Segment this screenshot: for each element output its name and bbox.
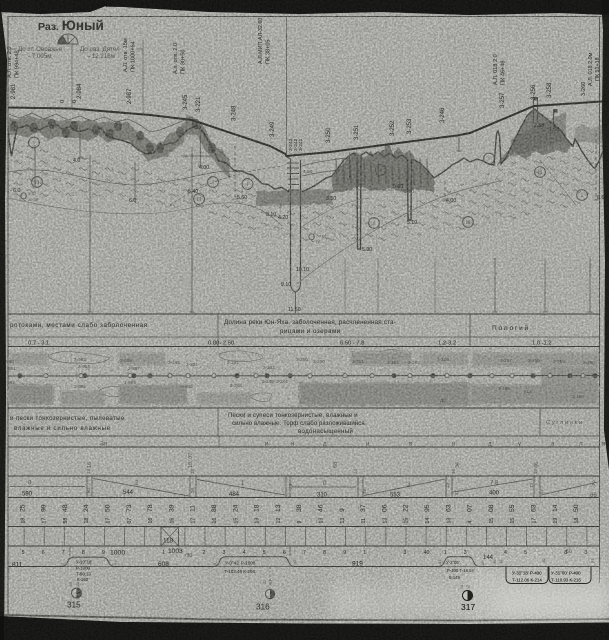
svg-text:38: 38: [296, 504, 303, 512]
svg-text:3-249: 3-249: [270, 121, 276, 137]
svg-text:484: 484: [229, 492, 240, 498]
svg-text:3.10: 3.10: [266, 212, 276, 218]
svg-text:310: 310: [317, 493, 328, 499]
svg-text:13: 13: [255, 518, 261, 524]
svg-text:0: 0: [72, 100, 78, 103]
svg-text:1.2-3.2: 1.2-3.2: [438, 341, 456, 347]
svg-text:13: 13: [275, 504, 282, 512]
svg-text:16: 16: [169, 518, 175, 524]
svg-text:0: 0: [60, 100, 66, 103]
svg-text:2: 2: [203, 550, 206, 556]
svg-text:15: 15: [233, 518, 239, 524]
svg-text:10.10: 10.10: [296, 267, 309, 273]
svg-text:9: 9: [297, 521, 303, 524]
svg-text:9: 9: [343, 550, 346, 556]
svg-text:7: 7: [62, 550, 65, 556]
svg-text:водонасыщенный: водонасыщенный: [298, 428, 353, 435]
svg-text:3: 3: [404, 550, 407, 556]
svg-text:3: 3: [223, 550, 226, 556]
svg-text:- 6.0: - 6.0: [10, 188, 20, 194]
svg-text:4.20: 4.20: [278, 215, 288, 221]
svg-text:Т-110.93 К-216: Т-110.93 К-216: [551, 578, 581, 583]
svg-text:рицами и озерами: рицами и озерами: [280, 328, 341, 335]
svg-text:4: 4: [468, 521, 474, 524]
svg-text:6.50 - 7.8: 6.50 - 7.8: [340, 341, 365, 347]
svg-text:У-0°42' Р-1000: У-0°42' Р-1000: [225, 561, 256, 566]
svg-text:3-245: 3-245: [183, 94, 189, 110]
svg-text:А.Л.МИП.АЛ-32.60: А.Л.МИП.АЛ-32.60: [258, 18, 264, 64]
svg-text:40: 40: [424, 550, 430, 556]
svg-text:95: 95: [424, 504, 431, 512]
svg-text:17: 17: [106, 518, 112, 524]
svg-text:влажные и сильно влажные: влажные и сильно влажные: [14, 426, 111, 432]
svg-text:Т-90.13: Т-90.13: [76, 572, 91, 577]
svg-text:46: 46: [318, 504, 325, 512]
svg-text:18: 18: [574, 518, 580, 524]
svg-text:3-221: 3-221: [196, 96, 202, 112]
svg-text:А.Л. отв. 2.0: А.Л. отв. 2.0: [7, 47, 13, 78]
svg-text:3-253: 3-253: [407, 118, 413, 134]
svg-text:50: 50: [573, 504, 580, 512]
svg-text:3-251: 3-251: [354, 124, 360, 140]
svg-text:12: 12: [276, 518, 282, 524]
svg-text:6: 6: [283, 550, 286, 556]
svg-text:К-160: К-160: [77, 577, 89, 582]
svg-text:17: 17: [191, 518, 197, 524]
svg-text:2-987: 2-987: [127, 88, 133, 104]
svg-text:590: 590: [22, 492, 33, 498]
svg-text:3-246: 3-246: [440, 107, 446, 123]
svg-text:К-149: К-149: [449, 575, 460, 580]
svg-text:3: 3: [584, 550, 587, 556]
svg-text:А.Л. отв. 15м: А.Л. отв. 15м: [123, 38, 129, 72]
svg-text:5: 5: [524, 550, 527, 556]
svg-text:07: 07: [127, 518, 133, 524]
svg-text:Раз. Юный: Раз. Юный: [38, 18, 104, 33]
svg-text:сильно влажные. Торф слабо: сильно влажные. Торф слабо разложившийся: [232, 420, 365, 427]
svg-text:0.80- 2.50: 0.80- 2.50: [208, 341, 234, 347]
svg-text:Долина реки Юн-Яха, заболоченн: Долина реки Юн-Яха, заболоченная, расчле…: [224, 319, 396, 326]
svg-text:ПК 994+48: ПК 994+48: [15, 50, 21, 78]
svg-text:15: 15: [404, 518, 410, 524]
svg-text:315: 315: [67, 601, 81, 610]
svg-text:16: 16: [212, 518, 218, 524]
svg-text:18: 18: [254, 504, 261, 512]
svg-text:811: 811: [12, 562, 23, 569]
svg-text:ПК 1000+64: ПК 1000+64: [131, 41, 137, 72]
svg-text:17: 17: [42, 518, 48, 524]
svg-text:Т-102.46 К-204: Т-102.46 К-204: [224, 569, 255, 574]
svg-text:25: 25: [19, 504, 26, 512]
svg-text:ПК 30+50: ПК 30+50: [181, 49, 187, 74]
svg-text:А.л. отв. 2.0: А.л. отв. 2.0: [173, 43, 179, 74]
svg-text:14: 14: [425, 518, 431, 524]
svg-text:608: 608: [158, 561, 169, 568]
svg-text:544: 544: [123, 490, 134, 496]
svg-text:17: 17: [532, 518, 538, 524]
svg-text:9: 9: [102, 550, 105, 556]
svg-text:3.50: 3.50: [326, 196, 336, 202]
svg-text:3-252: 3-252: [390, 120, 396, 136]
svg-text:18: 18: [84, 518, 90, 524]
svg-text:Пески и супеси тонкозернист: Пески и супеси тонкозернистые, влажные и: [228, 413, 358, 419]
svg-text:553: 553: [390, 493, 401, 499]
svg-text:7: 7: [303, 550, 306, 556]
svg-text:1.68: 1.68: [549, 127, 559, 133]
svg-text:5: 5: [22, 550, 25, 556]
svg-text:73: 73: [126, 504, 133, 512]
svg-text:8: 8: [564, 550, 567, 556]
svg-text:06: 06: [381, 504, 388, 512]
svg-text:и пески тонкозернистые, пыл: и пески тонкозернистые, пылеватые: [10, 416, 125, 422]
svg-text:5.00: 5.00: [393, 184, 403, 190]
svg-text:18: 18: [20, 518, 26, 524]
svg-text:3-250: 3-250: [326, 127, 332, 143]
svg-text:3-258: 3-258: [547, 82, 553, 98]
svg-text:316: 316: [256, 603, 270, 612]
svg-text:ротоками, местами слабо заболо: ротоками, местами слабо заболоченная: [10, 322, 148, 329]
svg-text:У-31°00' Р-400: У-31°00' Р-400: [551, 571, 581, 576]
svg-text:У-2°06': У-2°06': [446, 560, 460, 565]
svg-text:317: 317: [461, 602, 475, 612]
svg-text:919: 919: [352, 561, 363, 568]
svg-text:1: 1: [444, 550, 447, 556]
svg-text:2.58: 2.58: [534, 123, 544, 129]
svg-text:0.7 - 3.1: 0.7 - 3.1: [28, 341, 49, 347]
svg-text:У-31°18' Р-400: У-31°18' Р-400: [512, 571, 542, 576]
svg-text:07: 07: [467, 504, 474, 512]
svg-text:3-256: 3-256: [531, 84, 537, 100]
svg-text:П о л о г и й: П о л о г и й: [492, 324, 529, 332]
svg-text:1: 1: [162, 550, 165, 556]
svg-text:3-248: 3-248: [232, 105, 238, 121]
svg-text:5: 5: [263, 550, 266, 556]
svg-text:Р-1000: Р-1000: [76, 566, 90, 571]
svg-text:5.90: 5.90: [362, 247, 372, 253]
svg-text:ПК 51+18: ПК 51+18: [595, 57, 601, 81]
svg-text:3: 3: [464, 550, 467, 556]
svg-text:39: 39: [168, 504, 175, 512]
svg-text:А.Л. 018 2.0м: А.Л. 018 2.0м: [588, 52, 594, 86]
svg-text:13: 13: [446, 518, 452, 524]
svg-text:2-984: 2-984: [77, 83, 83, 99]
svg-text:24: 24: [83, 504, 90, 512]
svg-text:4: 4: [243, 550, 246, 556]
svg-text:11: 11: [190, 505, 197, 512]
svg-text:88: 88: [211, 504, 218, 512]
svg-text:55: 55: [509, 504, 516, 512]
svg-text:8: 8: [323, 550, 326, 556]
svg-text:3-260: 3-260: [581, 82, 587, 96]
svg-text:14: 14: [552, 504, 559, 512]
svg-text:50: 50: [105, 504, 112, 512]
svg-text:6.0: 6.0: [129, 198, 136, 204]
svg-text:3-257: 3-257: [500, 92, 506, 108]
svg-text:118: 118: [163, 538, 174, 545]
svg-text:48: 48: [62, 504, 69, 512]
svg-text:13: 13: [319, 518, 325, 524]
svg-text:78: 78: [147, 504, 154, 512]
svg-text:А.Л. 018 2.0: А.Л. 018 2.0: [493, 54, 499, 85]
svg-text:400: 400: [489, 491, 500, 497]
svg-text:4: 4: [504, 550, 507, 556]
svg-text:144: 144: [483, 555, 494, 561]
svg-text:11: 11: [361, 518, 367, 523]
svg-text:58: 58: [63, 518, 69, 524]
svg-text:ПК 46+48: ПК 46+48: [501, 60, 507, 85]
svg-text:Т-112.06 К-214: Т-112.06 К-214: [512, 578, 542, 583]
svg-text:63: 63: [531, 504, 538, 512]
svg-text:1003: 1003: [168, 548, 183, 555]
svg-text:19: 19: [553, 518, 559, 524]
svg-text:24: 24: [232, 504, 239, 512]
svg-text:4.00: 4.00: [446, 198, 456, 204]
svg-text:ПК 38+05: ПК 38+05: [266, 39, 272, 64]
svg-text:13: 13: [382, 518, 388, 524]
svg-text:22: 22: [403, 504, 410, 512]
svg-text:1: 1: [363, 550, 366, 556]
svg-text:9: 9: [339, 508, 346, 512]
svg-text:8: 8: [82, 550, 85, 556]
svg-text:99: 99: [41, 504, 48, 512]
svg-text:08: 08: [488, 504, 495, 512]
svg-text:1000: 1000: [110, 550, 125, 557]
svg-text:4.0: 4.0: [73, 158, 80, 164]
svg-text:16: 16: [148, 518, 154, 524]
svg-text:1.0 -1.2: 1.0 -1.2: [532, 341, 552, 347]
svg-text:6: 6: [42, 550, 45, 556]
svg-text:5.40: 5.40: [188, 189, 198, 195]
svg-text:15: 15: [489, 518, 495, 524]
svg-text:5.10: 5.10: [407, 220, 417, 226]
svg-text:2-981: 2-981: [11, 83, 17, 99]
svg-text:5.60: 5.60: [237, 195, 247, 201]
svg-text:9.10: 9.10: [281, 282, 291, 288]
svg-text:4.00: 4.00: [199, 165, 209, 171]
svg-text:63: 63: [445, 504, 452, 512]
svg-text:3-241: 3-241: [298, 138, 304, 151]
svg-text:13: 13: [340, 518, 346, 524]
svg-text:37: 37: [360, 504, 367, 512]
svg-text:11.50: 11.50: [288, 307, 301, 313]
svg-text:У-10°18': У-10°18': [76, 560, 92, 565]
svg-text:15: 15: [510, 518, 516, 524]
